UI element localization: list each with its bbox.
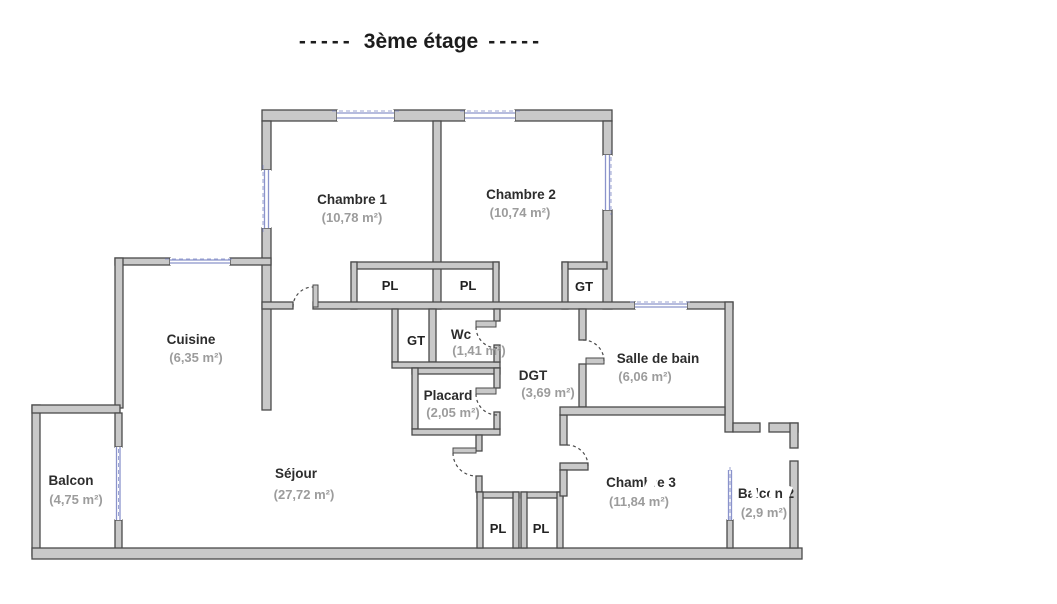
door-sejour <box>453 448 476 476</box>
window-salle-de-bain-top <box>630 302 692 309</box>
closet-label-pl4: PL <box>533 521 550 536</box>
floor-plan-svg: Chambre 1 (10,78 m²) Chambre 2 (10,74 m²… <box>0 0 1057 604</box>
window-balcon-door <box>115 447 122 520</box>
room-area-balcon2: (2,9 m²) <box>741 505 787 520</box>
closet-label-pl2: PL <box>460 278 477 293</box>
room-label-chambre2: Chambre 2 <box>486 187 556 202</box>
room-label-chambre1: Chambre 1 <box>317 192 387 207</box>
room-area-chambre1: (10,78 m²) <box>322 210 383 225</box>
room-area-cuisine: (6,35 m²) <box>169 350 222 365</box>
room-area-salle-de-bain: (6,06 m²) <box>618 369 671 384</box>
window-chambre1-top <box>332 110 399 121</box>
room-label-chambre3: Chambre 3 <box>606 475 676 490</box>
window-balcon2-door <box>727 467 733 522</box>
doors <box>293 285 604 476</box>
window-chambre2-right <box>603 150 612 215</box>
room-area-chambre3: (11,84 m²) <box>609 494 669 509</box>
closet-label-pl3: PL <box>490 521 507 536</box>
room-area-placard: (2,05 m²) <box>426 405 479 420</box>
room-label-dgt: DGT <box>519 368 548 383</box>
window-cuisine-top <box>165 258 235 265</box>
room-area-dgt: (3,69 m²) <box>521 385 574 400</box>
windows <box>115 110 733 522</box>
room-label-placard: Placard <box>424 388 473 403</box>
closet-label-gt2: GT <box>407 333 425 348</box>
room-label-salle-de-bain: Salle de bain <box>617 351 700 366</box>
window-chambre2-top <box>460 110 520 121</box>
closet-label-pl1: PL <box>382 278 399 293</box>
floor-plan-page: -----3ème étage----- <box>0 0 1057 604</box>
room-label-wc: Wc <box>451 327 472 342</box>
door-salle-de-bain <box>583 340 604 364</box>
room-label-sejour: Séjour <box>275 466 318 481</box>
room-label-cuisine: Cuisine <box>167 332 216 347</box>
room-area-sejour: (27,72 m²) <box>274 487 335 502</box>
door-chambre1 <box>293 285 318 307</box>
room-area-balcon: (4,75 m²) <box>49 492 102 507</box>
closet-label-gt1: GT <box>575 279 593 294</box>
room-label-balcon: Balcon <box>48 473 93 488</box>
room-area-chambre2: (10,74 m²) <box>490 205 551 220</box>
room-area-wc: (1,41 m²) <box>452 343 505 358</box>
window-chambre1-left <box>262 165 271 233</box>
room-labels: Chambre 1 (10,78 m²) Chambre 2 (10,74 m²… <box>48 187 794 520</box>
